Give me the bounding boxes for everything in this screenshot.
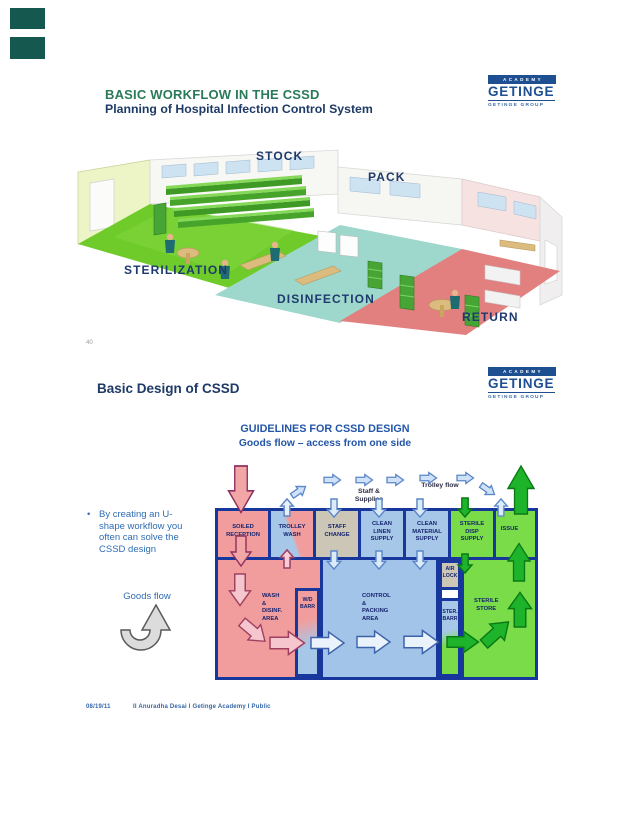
flow-arrows xyxy=(0,0,638,826)
room-label: ISSUE xyxy=(501,526,518,557)
getinge-wordmark: GETINGE xyxy=(488,376,555,394)
getinge-group-label: GETINGE GROUP xyxy=(488,395,558,400)
room-label: CLEAN LINEN SUPPLY xyxy=(371,521,394,557)
room-label: STER. BARR xyxy=(442,609,457,674)
getinge-group-label: GETINGE GROUP xyxy=(488,103,558,108)
bullet-marker: • xyxy=(87,509,90,520)
slide-thumbnail-partial-2[interactable] xyxy=(10,37,45,59)
trolley-flow-label: Trolley flow xyxy=(420,482,460,490)
room-label: SOILED RECEPTION xyxy=(226,524,260,557)
cssd-floorplan: SOILED RECEPTION TROLLEY WASH STAFF CHAN… xyxy=(215,508,538,680)
slide1-subtitle: Planning of Hospital Infection Control S… xyxy=(105,102,373,116)
bullet-text: By creating an U-shape workflow you ofte… xyxy=(99,509,195,555)
getinge-logo-2: ACADEMY GETINGE GETINGE GROUP xyxy=(488,367,558,400)
footer-credit: II Anuradha Desai I Getinge Academy I Pu… xyxy=(133,704,271,710)
label-stock: STOCK xyxy=(256,149,303,163)
room-clean-linen-supply: CLEAN LINEN SUPPLY xyxy=(361,511,403,557)
airlock-door-gap xyxy=(442,590,458,598)
room-label: W/D BARR xyxy=(300,597,315,674)
getinge-wordmark: GETINGE xyxy=(488,84,555,102)
room-issue: ISSUE xyxy=(496,511,535,557)
room-control-packing-area: CONTROL & PACKING AREA xyxy=(323,560,436,677)
room-sterile-store: STERILE STORE xyxy=(464,560,535,677)
label-pack: PACK xyxy=(368,170,406,184)
room-label: TROLLEY WASH xyxy=(278,524,305,557)
room-ster-barr: STER. BARR xyxy=(439,598,461,677)
room-label: CONTROL & PACKING AREA xyxy=(362,593,391,623)
room-staff-change: STAFF CHANGE xyxy=(316,511,358,557)
room-sterile-disp-supply: STERILE DISP SUPPLY xyxy=(451,511,493,557)
staff-supplies-label: Staff & Supplies xyxy=(346,488,392,504)
academy-badge: ACADEMY xyxy=(488,75,556,84)
slide1-title: BASIC WORKFLOW IN THE CSSD xyxy=(105,87,320,102)
diagram-subtitle: Goods flow – access from one side xyxy=(165,438,485,449)
room-clean-material-supply: CLEAN MATERIAL SUPPLY xyxy=(406,511,448,557)
getinge-logo: ACADEMY GETINGE GETINGE GROUP xyxy=(488,75,558,108)
slide-thumbnail-partial-1[interactable] xyxy=(10,8,45,29)
room-label: CLEAN MATERIAL SUPPLY xyxy=(412,521,442,557)
diagram-title: GUIDELINES FOR CSSD DESIGN xyxy=(165,423,485,435)
goods-flow-label: Goods flow xyxy=(115,591,179,602)
room-label: AIR LOCK xyxy=(443,566,458,587)
room-trolley-wash: TROLLEY WASH xyxy=(271,511,313,557)
label-return: RETURN xyxy=(462,310,519,324)
room-wd-barr: W/D BARR xyxy=(295,588,320,677)
slide-number: 40 xyxy=(86,340,93,346)
room-air-lock: AIR LOCK xyxy=(439,560,461,590)
room-label: STERILE STORE xyxy=(474,598,498,613)
footer-date: 08/19/11 xyxy=(86,704,111,710)
label-disinfection: DISINFECTION xyxy=(277,292,375,306)
label-sterilization: STERILIZATION xyxy=(124,263,228,277)
room-label: STAFF CHANGE xyxy=(324,524,349,557)
slide2-title: Basic Design of CSSD xyxy=(97,381,240,396)
room-soiled-reception: SOILED RECEPTION xyxy=(218,511,268,557)
room-label: WASH & DISINF. AREA xyxy=(262,593,282,623)
u-turn-arrow xyxy=(121,605,170,650)
room-label: STERILE DISP SUPPLY xyxy=(460,521,484,557)
academy-badge: ACADEMY xyxy=(488,367,556,376)
